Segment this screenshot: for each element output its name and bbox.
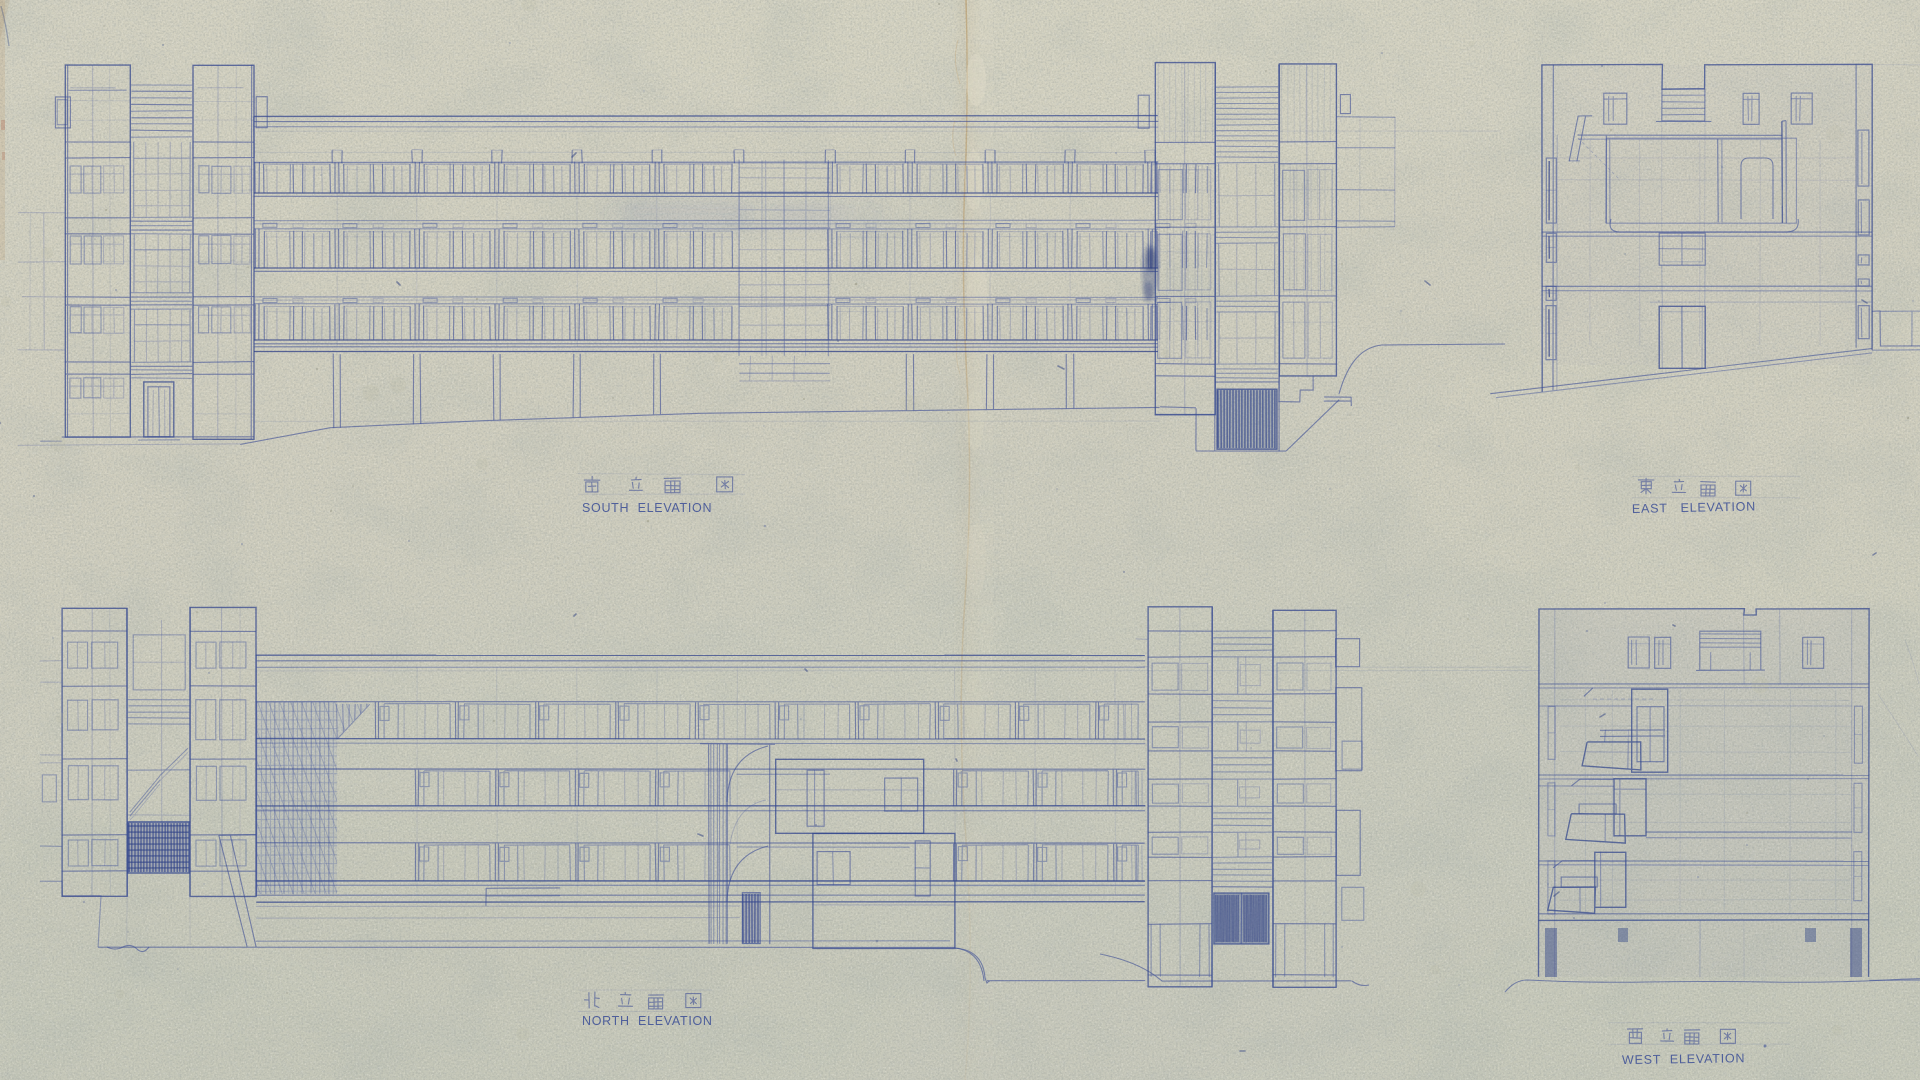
svg-text:NORTH ELEVATION: NORTH ELEVATION	[582, 1014, 713, 1028]
svg-text:WEST ELEVATION: WEST ELEVATION	[1622, 1051, 1746, 1067]
svg-text:SOUTH ELEVATION: SOUTH ELEVATION	[582, 501, 712, 515]
svg-text:EAST ELEVATION: EAST ELEVATION	[1632, 499, 1756, 516]
